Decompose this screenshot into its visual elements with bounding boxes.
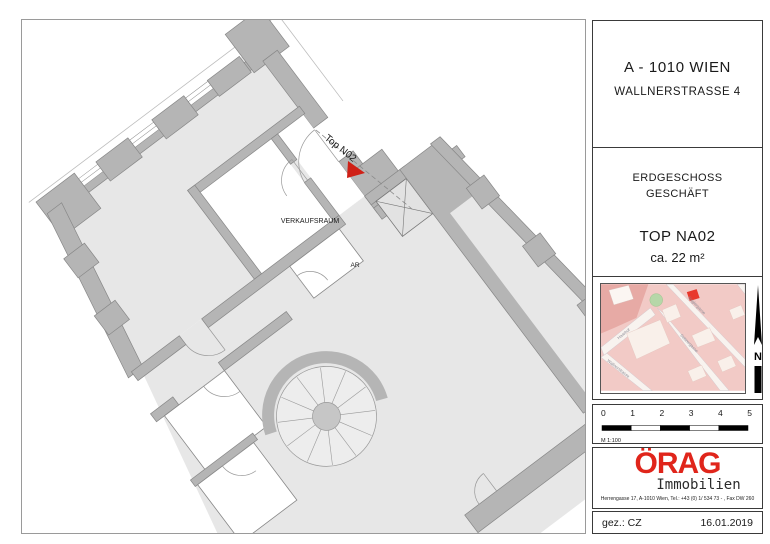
north-label: N [754,351,762,363]
tick-0: 0 [601,408,606,418]
unit-usage: GESCHÄFT [593,186,762,202]
scalebar-bar [601,425,749,431]
tick-2: 2 [660,408,665,418]
unit-top: TOP NA02 [593,228,762,245]
drawn-by: gez.: CZ [602,517,642,529]
unit-floor: ERDGESCHOSS [593,170,762,186]
address-box: A - 1010 WIEN WALLNERSTRASSE 4 [592,20,763,148]
ar-label: AR [350,262,359,269]
address-city: A - 1010 WIEN [593,59,762,76]
room-label: VERKAUFSRAUM [281,218,340,225]
tick-1: 1 [630,408,635,418]
tick-4: 4 [718,408,723,418]
building [22,20,585,533]
unit-area: ca. 22 m² [593,250,762,265]
unit-info-box: ERDGESCHOSS GESCHÄFT TOP NA02 ca. 22 m² [592,147,763,277]
scalebar-box: 0 1 2 3 4 5 M 1:100 [592,404,763,444]
company-logo: ÖRAG [593,449,762,479]
floor-plan-svg: Top N02 VERKAUFSRAUM AR [22,20,585,533]
plan-date: 16.01.2019 [700,517,753,529]
logo-box: ÖRAG Immobilien Herrengasse 17, A-1010 W… [592,447,763,509]
north-arrow: N [749,283,767,393]
tick-3: 3 [689,408,694,418]
site-map: Haarhof Naglergasse Seitzergasse Wallner… [600,283,746,394]
floor-plan-frame: Top N02 VERKAUFSRAUM AR [21,19,586,534]
site-map-svg: Haarhof Naglergasse Seitzergasse Wallner… [601,284,745,391]
tick-5: 5 [747,408,752,418]
map-tree-icon [650,294,663,307]
north-arrow-icon [754,285,762,345]
scalebar-ticks: 0 1 2 3 4 5 [601,408,752,418]
title-block: A - 1010 WIEN WALLNERSTRASSE 4 ERDGESCHO… [592,20,763,534]
company-contact: Herrengasse 17, A-1010 Wien, Tel.: +43 (… [593,496,762,502]
address-street: WALLNERSTRASSE 4 [593,86,762,98]
map-box: Haarhof Naglergasse Seitzergasse Wallner… [592,276,763,400]
scale-ratio-label: M 1:100 [601,438,754,444]
footer-box: gez.: CZ 16.01.2019 [592,511,763,534]
